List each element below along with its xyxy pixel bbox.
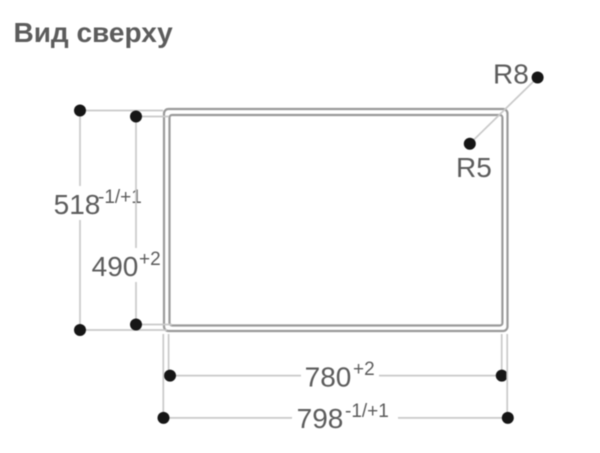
svg-text:+2: +2 — [139, 249, 161, 270]
svg-text:R5: R5 — [456, 152, 492, 183]
svg-text:780: 780 — [305, 362, 352, 393]
svg-text:Вид сверху: Вид сверху — [14, 17, 174, 48]
svg-text:R8: R8 — [493, 59, 529, 90]
svg-text:+2: +2 — [353, 359, 375, 380]
svg-text:-1/+1: -1/+1 — [345, 401, 389, 422]
svg-text:490: 490 — [92, 251, 139, 282]
svg-text:518: 518 — [54, 189, 101, 220]
svg-text:798: 798 — [297, 403, 344, 434]
